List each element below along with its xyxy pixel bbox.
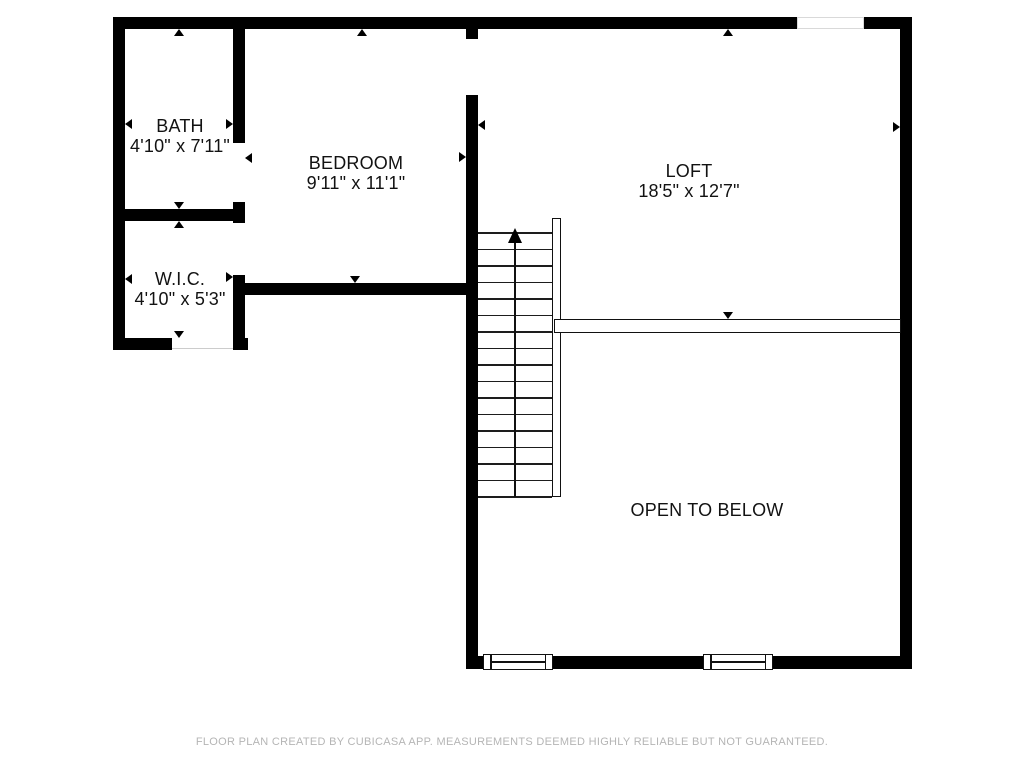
window-center-line bbox=[491, 661, 545, 663]
measure-arrow-down-icon bbox=[350, 276, 360, 283]
wall-right bbox=[900, 17, 912, 669]
measure-arrow-left-icon bbox=[478, 120, 485, 130]
measure-arrow-left-icon bbox=[245, 153, 252, 163]
wall-bath-wic-divider bbox=[113, 209, 233, 221]
room-dimensions: 4'10" x 5'3" bbox=[134, 289, 225, 309]
door-threshold-line bbox=[172, 348, 233, 349]
disclaimer-text: FLOOR PLAN CREATED BY CUBICASA APP. MEAS… bbox=[196, 736, 828, 748]
measure-arrow-left-icon bbox=[125, 274, 132, 284]
window-bottom-left bbox=[483, 654, 553, 670]
wall-bedroom-door-stub bbox=[466, 29, 478, 39]
measure-arrow-right-icon bbox=[893, 122, 900, 132]
window-top bbox=[797, 17, 864, 29]
room-label-open-to-below: OPEN TO BELOW bbox=[631, 500, 784, 520]
measure-arrow-right-icon bbox=[459, 152, 466, 162]
wall-bedroom-loft bbox=[466, 95, 478, 669]
measure-arrow-right-icon bbox=[226, 272, 233, 282]
room-dimensions: 18'5" x 12'7" bbox=[638, 181, 739, 201]
room-label-wic: W.I.C. 4'10" x 5'3" bbox=[134, 269, 225, 309]
window-center-line bbox=[711, 661, 765, 663]
room-label-bedroom: BEDROOM 9'11" x 11'1" bbox=[307, 153, 406, 193]
wall-bath-bedroom bbox=[233, 29, 245, 143]
measure-arrow-up-icon bbox=[723, 29, 733, 36]
room-name: LOFT bbox=[638, 161, 739, 181]
measure-arrow-down-icon bbox=[174, 331, 184, 338]
room-dimensions: 9'11" x 11'1" bbox=[307, 173, 406, 193]
measure-arrow-up-icon bbox=[174, 29, 184, 36]
room-name: BATH bbox=[130, 116, 230, 136]
wall-bedroom-bottom bbox=[233, 283, 478, 295]
room-name: BEDROOM bbox=[307, 153, 406, 173]
wall-door-jamb bbox=[233, 202, 245, 223]
wall-top bbox=[113, 17, 912, 29]
room-label-bath: BATH 4'10" x 7'11" bbox=[130, 116, 230, 156]
room-name: OPEN TO BELOW bbox=[631, 500, 784, 520]
measure-arrow-down-icon bbox=[174, 202, 184, 209]
measure-arrow-up-icon bbox=[357, 29, 367, 36]
measure-arrow-up-icon bbox=[174, 221, 184, 228]
window-bottom-right bbox=[703, 654, 773, 670]
wall-wic-bottom-right bbox=[233, 338, 248, 350]
stairs-direction-line bbox=[514, 243, 516, 497]
wall-left bbox=[113, 17, 125, 350]
stairs-direction-arrow bbox=[508, 228, 522, 243]
wall-wic-bottom-left bbox=[113, 338, 172, 350]
room-name: W.I.C. bbox=[134, 269, 225, 289]
room-dimensions: 4'10" x 7'11" bbox=[130, 136, 230, 156]
measure-arrow-down-icon bbox=[723, 312, 733, 319]
floor-plan: BATH 4'10" x 7'11" BEDROOM 9'11" x 11'1"… bbox=[0, 0, 1024, 768]
room-label-loft: LOFT 18'5" x 12'7" bbox=[638, 161, 739, 201]
loft-railing bbox=[554, 319, 901, 333]
stair-railing bbox=[552, 218, 561, 497]
